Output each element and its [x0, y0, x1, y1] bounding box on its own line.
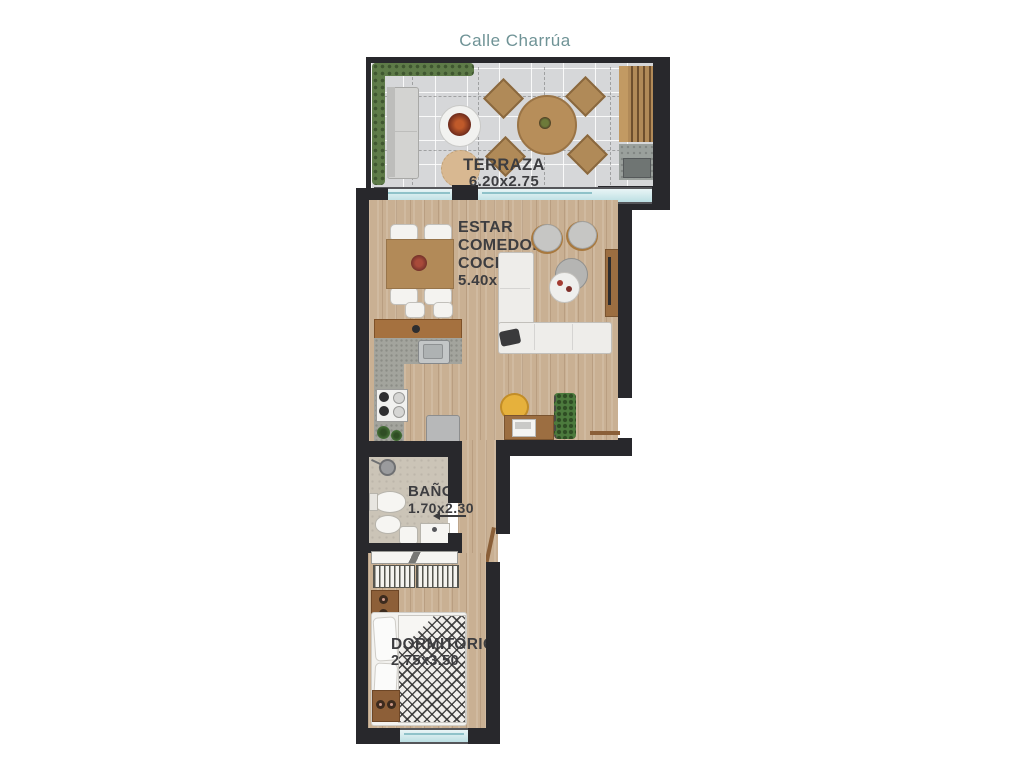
room-name-bano: BAÑO: [408, 484, 474, 501]
toilet-tank: [369, 493, 378, 511]
bedroom-bottom-wall-right: [468, 728, 500, 744]
sofa-seam: [534, 324, 535, 350]
nightstand: [372, 690, 400, 722]
terrace-table-centerpiece: [539, 117, 551, 129]
tv-screen: [608, 257, 611, 305]
bath-right-wall-upper: [448, 441, 462, 503]
terrace-grill-block: [623, 158, 651, 178]
glass-door-line: [380, 192, 450, 194]
dining-centerpiece: [411, 255, 427, 271]
wardrobe: [373, 565, 415, 588]
bedroom-window-line: [404, 733, 464, 735]
bath-door-arrowhead: [433, 512, 440, 520]
kitchen-bar-knob: [412, 325, 420, 333]
room-label-dormitorio: DORMITORIO 2.75x3.50: [391, 636, 495, 670]
armchair-seat: [533, 224, 562, 252]
room-label-bano: BAÑO 1.70x2.30: [408, 484, 474, 516]
terrace-deck-shelf: [619, 66, 628, 142]
room-label-terraza: TERRAZA 6.20x2.75: [448, 156, 560, 191]
bedroom-bottom-wall-left: [356, 728, 400, 744]
stove-burner: [393, 392, 405, 404]
kitchen-sink-basin: [423, 344, 443, 359]
bedroom-window: [400, 728, 468, 744]
bath-top-wall: [356, 441, 462, 457]
bedroom-right-wall: [486, 562, 500, 744]
kitchen-stool: [433, 302, 453, 318]
coffee-cup: [566, 286, 572, 292]
wardrobe: [416, 565, 459, 588]
living-bottom-wall-right: [498, 440, 632, 456]
kitchen-plant: [391, 430, 402, 441]
room-name-dormitorio: DORMITORIO: [391, 636, 495, 653]
sofa-seam: [572, 324, 573, 350]
hall-right-wall: [496, 440, 510, 534]
terrace-hedge: [372, 63, 474, 76]
terrace-sofa-back: [387, 87, 395, 177]
room-dims-terraza: 6.20x2.75: [448, 174, 560, 191]
entry-door-leaf: [590, 431, 620, 435]
terrace-top-wall: [366, 57, 668, 63]
toilet: [374, 491, 406, 513]
kitchen-plant: [377, 426, 390, 439]
terrace-hedge: [372, 63, 385, 185]
stove-burner: [379, 392, 389, 402]
sofa-seam: [500, 288, 530, 289]
nightstand-knob: [379, 595, 388, 604]
shower-head-icon: [379, 459, 396, 476]
floor-plan: TERRAZA 6.20x2.75 ESTAR COMEDOR COCINA 5…: [0, 0, 1024, 768]
coffee-table-small: [549, 272, 580, 303]
nightstand-knob: [387, 700, 396, 709]
firepit-bowl: [448, 113, 471, 136]
nightstand-knob: [376, 700, 385, 709]
desk-plant: [554, 393, 576, 439]
stove-burner: [393, 406, 405, 418]
closet-shelf: [371, 551, 458, 564]
sofa-vertical: [498, 252, 534, 328]
room-dims-dormitorio: 2.75x3.50: [391, 653, 495, 669]
bath-door-arrow: [438, 515, 466, 517]
terrace-left-wall: [366, 57, 371, 195]
grid-line: [610, 67, 611, 185]
laptop-screen: [515, 422, 531, 429]
bidet: [375, 515, 401, 534]
kitchen-stool: [405, 302, 425, 318]
armchair-seat: [568, 221, 597, 249]
coffee-cup: [557, 280, 563, 286]
stove-burner: [379, 406, 389, 416]
room-name-terraza: TERRAZA: [448, 156, 560, 174]
glass-door-line: [482, 192, 592, 194]
sofa-seam: [395, 131, 417, 132]
vanity-faucet: [432, 527, 437, 532]
living-right-wall-upper: [618, 206, 632, 398]
